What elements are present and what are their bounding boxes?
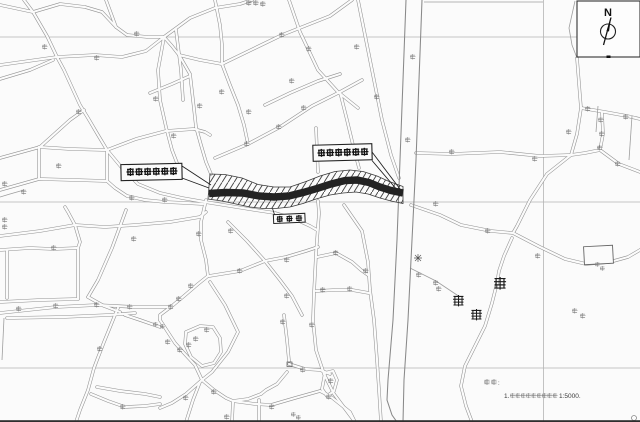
svg-text:1:5000.: 1:5000. — [559, 393, 581, 400]
svg-text:N: N — [604, 7, 612, 19]
svg-text:1.: 1. — [504, 393, 510, 400]
